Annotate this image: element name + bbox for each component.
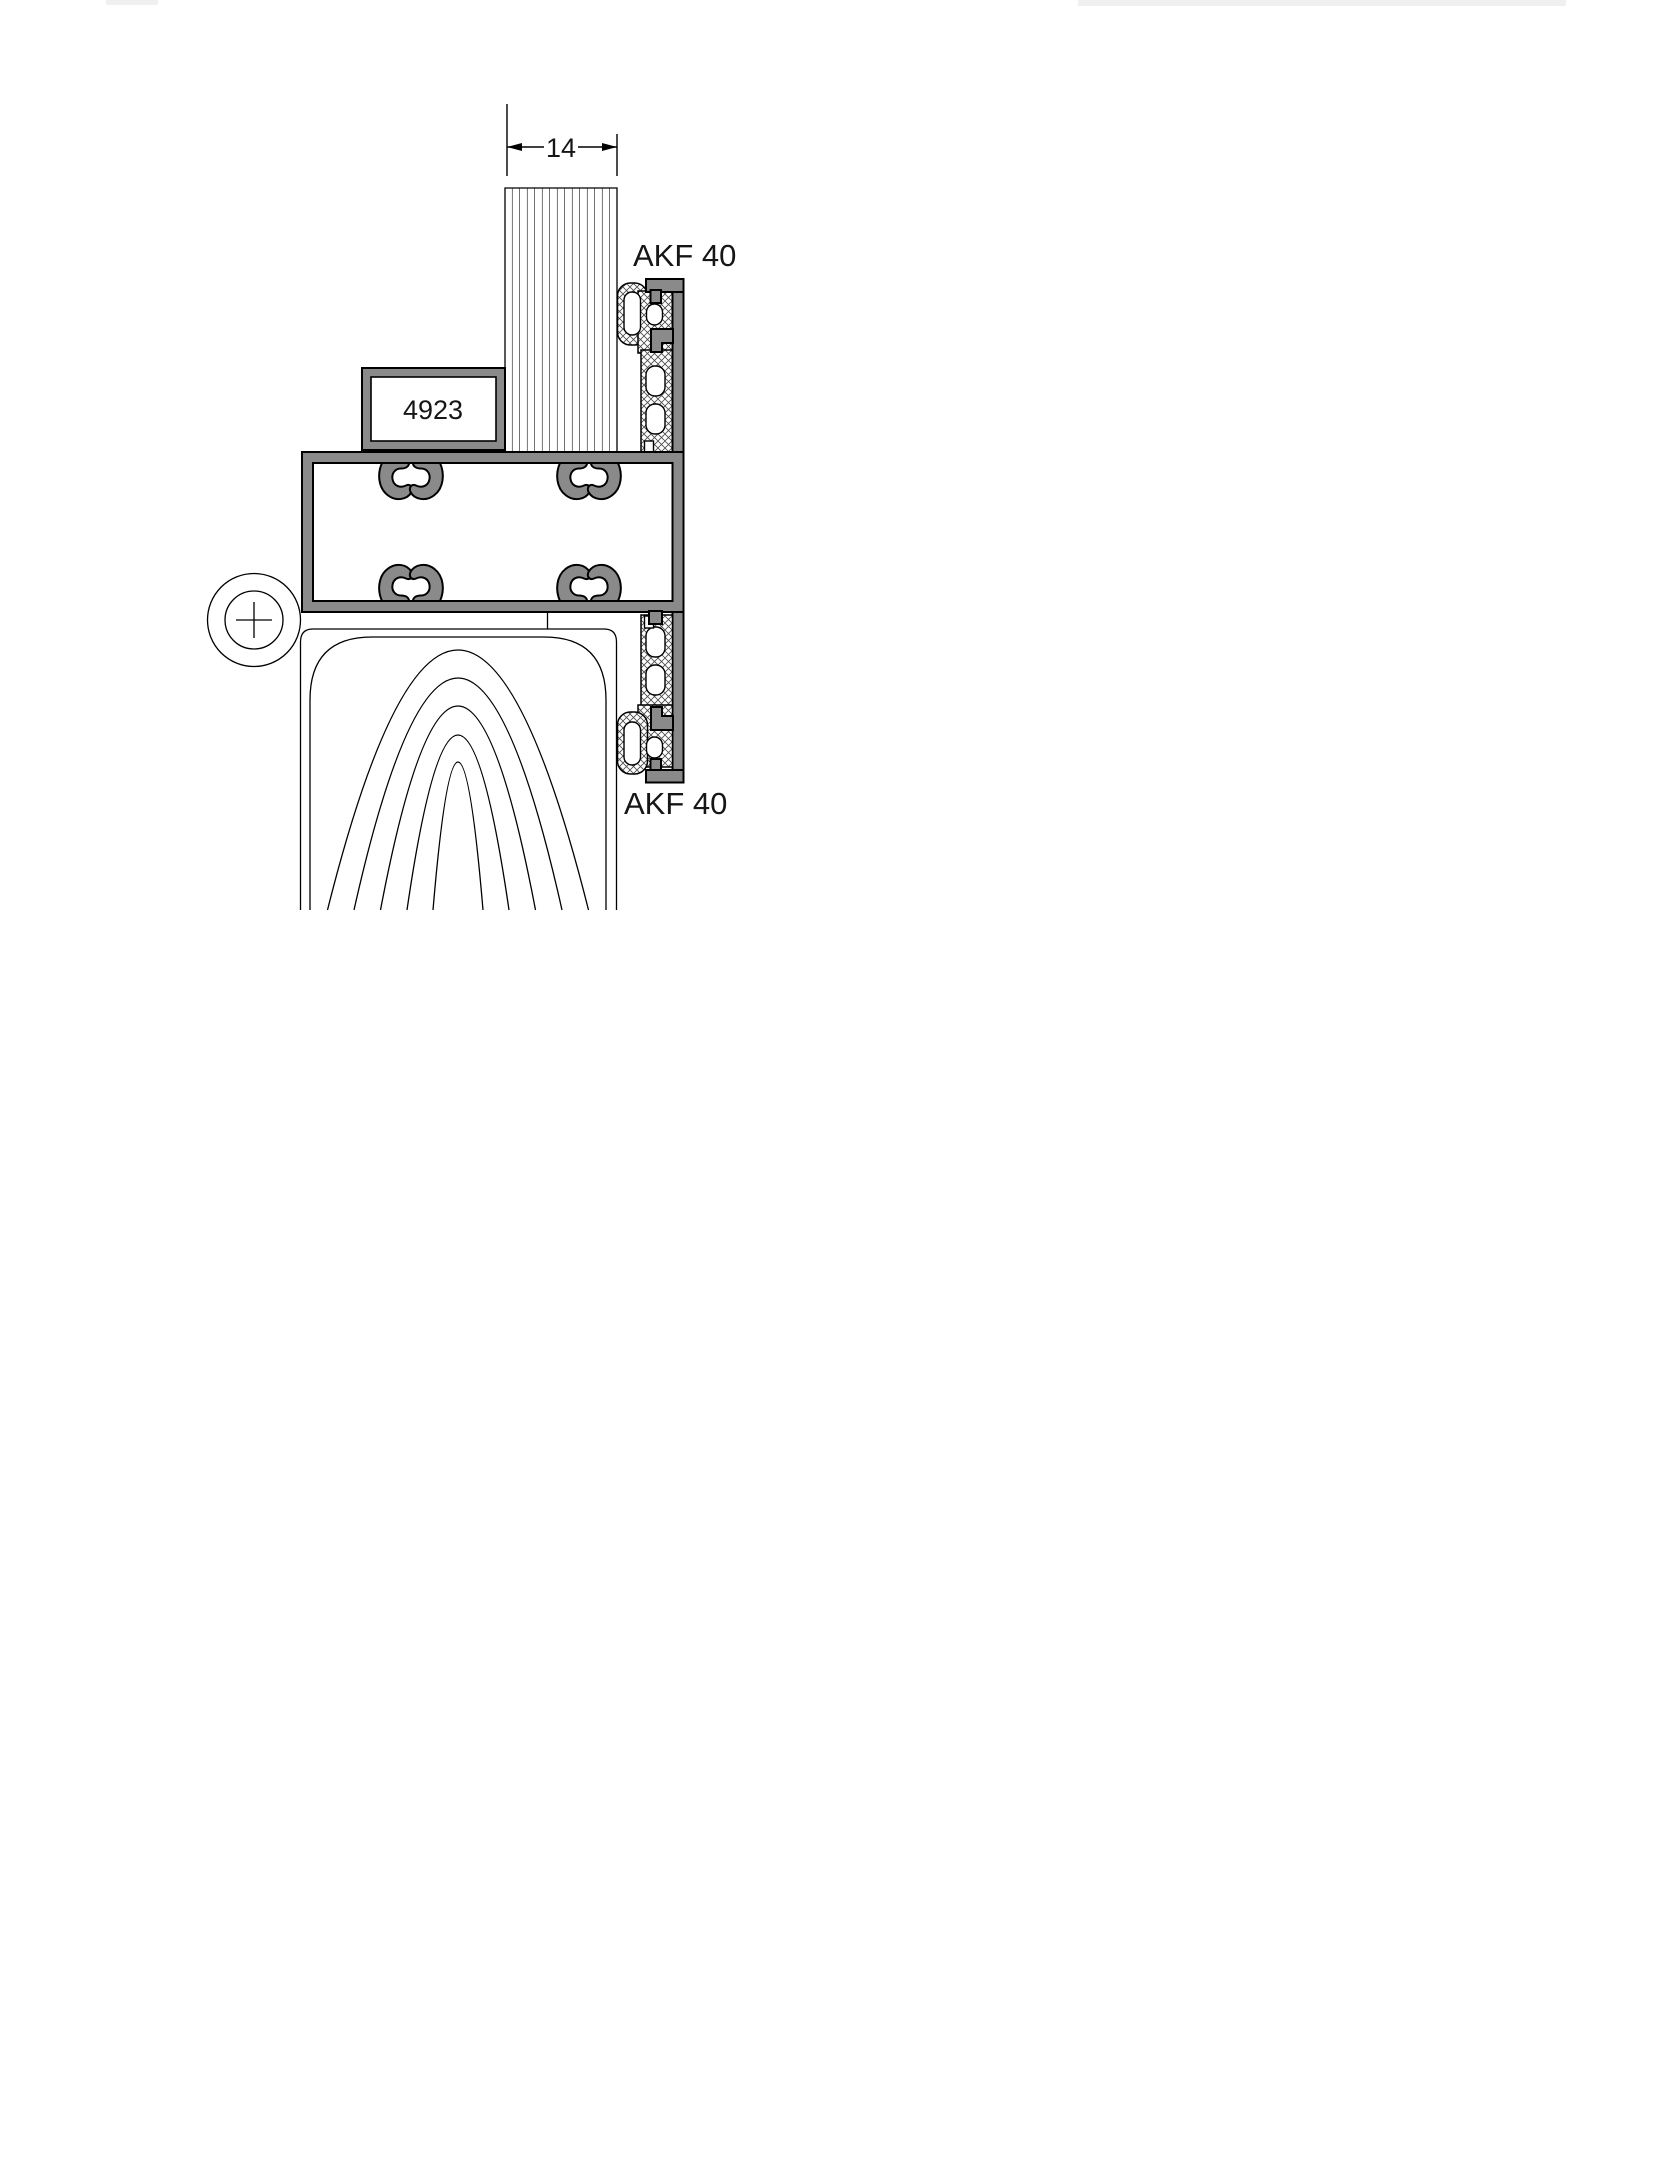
upper-gasket-chamber-1 <box>624 292 641 335</box>
clip-channel-bottom-right <box>557 565 621 601</box>
dimension-value: 14 <box>546 133 576 163</box>
lower-profile-stub <box>649 611 662 624</box>
lower-profile-cap <box>646 770 684 783</box>
label-akf40-top: AKF 40 <box>633 238 736 273</box>
upper-profile-lip <box>651 290 662 303</box>
frame-profile <box>302 452 684 612</box>
label-akf40-bottom: AKF 40 <box>624 786 727 821</box>
hinge-axis-icon <box>208 574 301 667</box>
dimension-arrow-left-icon <box>507 143 522 151</box>
scan-artifact-right <box>1078 0 1566 6</box>
wood-section <box>301 613 617 910</box>
upper-gasket-chamber-4 <box>646 404 665 434</box>
panel-section <box>505 188 617 452</box>
upper-gasket-chamber-3 <box>646 366 665 396</box>
scan-artifact-left <box>106 0 158 5</box>
frame-profile-tube <box>302 452 684 612</box>
clip-channel-bottom-left <box>379 565 443 601</box>
dimension-arrow-right-icon <box>602 143 617 151</box>
technical-drawing: 14 <box>0 0 1654 2170</box>
hinge-crosshair <box>236 602 272 638</box>
panel-hatch <box>505 188 617 452</box>
page: 14 <box>0 0 1654 2170</box>
wood-outline <box>301 629 617 910</box>
dimension-14: 14 <box>507 104 617 176</box>
lower-gasket-chamber-2 <box>646 627 665 657</box>
part-number-label: 4923 <box>403 395 463 425</box>
lower-gasket-chamber-1 <box>624 722 641 765</box>
lower-gasket-chamber-3 <box>646 665 665 695</box>
wood-grain <box>310 637 606 910</box>
upper-gasket-chamber-2 <box>647 304 663 325</box>
clip-channel-top-left <box>379 463 443 499</box>
part-box-4923: 4923 <box>362 368 505 450</box>
lower-gasket-chamber-4 <box>647 737 663 758</box>
clip-channel-top-right <box>557 463 621 499</box>
